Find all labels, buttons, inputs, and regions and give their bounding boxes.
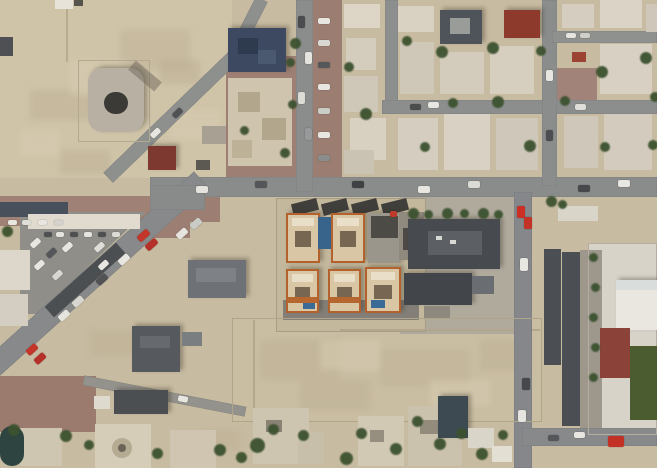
parked-car bbox=[33, 259, 45, 271]
car-on-road bbox=[178, 395, 189, 403]
car-on-road bbox=[428, 102, 439, 108]
parked-car bbox=[84, 232, 92, 237]
car-on-road bbox=[575, 104, 586, 110]
parked-car bbox=[318, 62, 330, 68]
red-vehicle bbox=[25, 343, 39, 356]
car-on-road bbox=[418, 186, 430, 193]
red-vehicle bbox=[390, 211, 397, 217]
red-vehicle bbox=[136, 229, 150, 243]
car-on-road bbox=[305, 52, 312, 64]
parked-car bbox=[51, 269, 63, 281]
parked-car bbox=[44, 232, 52, 237]
car-on-road bbox=[171, 107, 183, 119]
car-on-road bbox=[352, 181, 364, 188]
car-on-road bbox=[468, 181, 480, 188]
car-on-road bbox=[71, 295, 85, 308]
car-on-road bbox=[578, 185, 590, 192]
parked-car bbox=[97, 259, 109, 271]
car-on-road bbox=[305, 128, 312, 140]
car-on-road bbox=[518, 410, 526, 422]
car-on-road bbox=[548, 435, 559, 441]
car-on-road bbox=[57, 309, 71, 322]
parked-car bbox=[38, 220, 47, 225]
car-on-road bbox=[298, 92, 305, 104]
car-on-road bbox=[189, 217, 203, 230]
red-vehicle bbox=[144, 238, 158, 252]
car-on-road bbox=[522, 378, 530, 390]
parked-car bbox=[318, 132, 330, 138]
parked-car bbox=[29, 237, 41, 249]
layer-vehicles bbox=[0, 0, 657, 468]
parked-car bbox=[318, 84, 330, 90]
parked-car bbox=[112, 232, 120, 237]
car-on-road bbox=[117, 253, 131, 266]
car-on-road bbox=[546, 70, 553, 81]
parked-car bbox=[318, 108, 330, 114]
red-vehicle bbox=[524, 217, 532, 229]
parked-car bbox=[45, 247, 57, 259]
parked-car bbox=[318, 18, 330, 24]
car-on-road bbox=[255, 181, 267, 188]
car-on-road bbox=[520, 258, 528, 271]
red-vehicle bbox=[608, 436, 624, 447]
parked-car bbox=[22, 220, 31, 225]
car-on-road bbox=[196, 186, 208, 193]
car-on-road bbox=[410, 104, 421, 110]
red-vehicle bbox=[33, 352, 47, 365]
parked-car bbox=[70, 232, 78, 237]
car-on-road bbox=[574, 432, 585, 438]
parked-car bbox=[93, 241, 105, 253]
parked-car bbox=[98, 232, 106, 237]
parked-car bbox=[54, 220, 63, 225]
red-vehicle bbox=[517, 206, 525, 218]
car-on-road bbox=[298, 16, 305, 28]
car-on-road bbox=[566, 33, 576, 38]
car-on-road bbox=[95, 273, 109, 286]
car-on-road bbox=[175, 227, 189, 240]
car-on-road bbox=[546, 130, 553, 141]
parked-car bbox=[61, 241, 73, 253]
parked-car bbox=[8, 220, 17, 225]
car-on-road bbox=[618, 180, 630, 187]
parked-car bbox=[318, 155, 330, 161]
car-on-road bbox=[149, 127, 161, 139]
satellite-map-view[interactable] bbox=[0, 0, 657, 468]
parked-car bbox=[56, 232, 64, 237]
car-on-road bbox=[580, 33, 590, 38]
parked-car bbox=[318, 40, 330, 46]
